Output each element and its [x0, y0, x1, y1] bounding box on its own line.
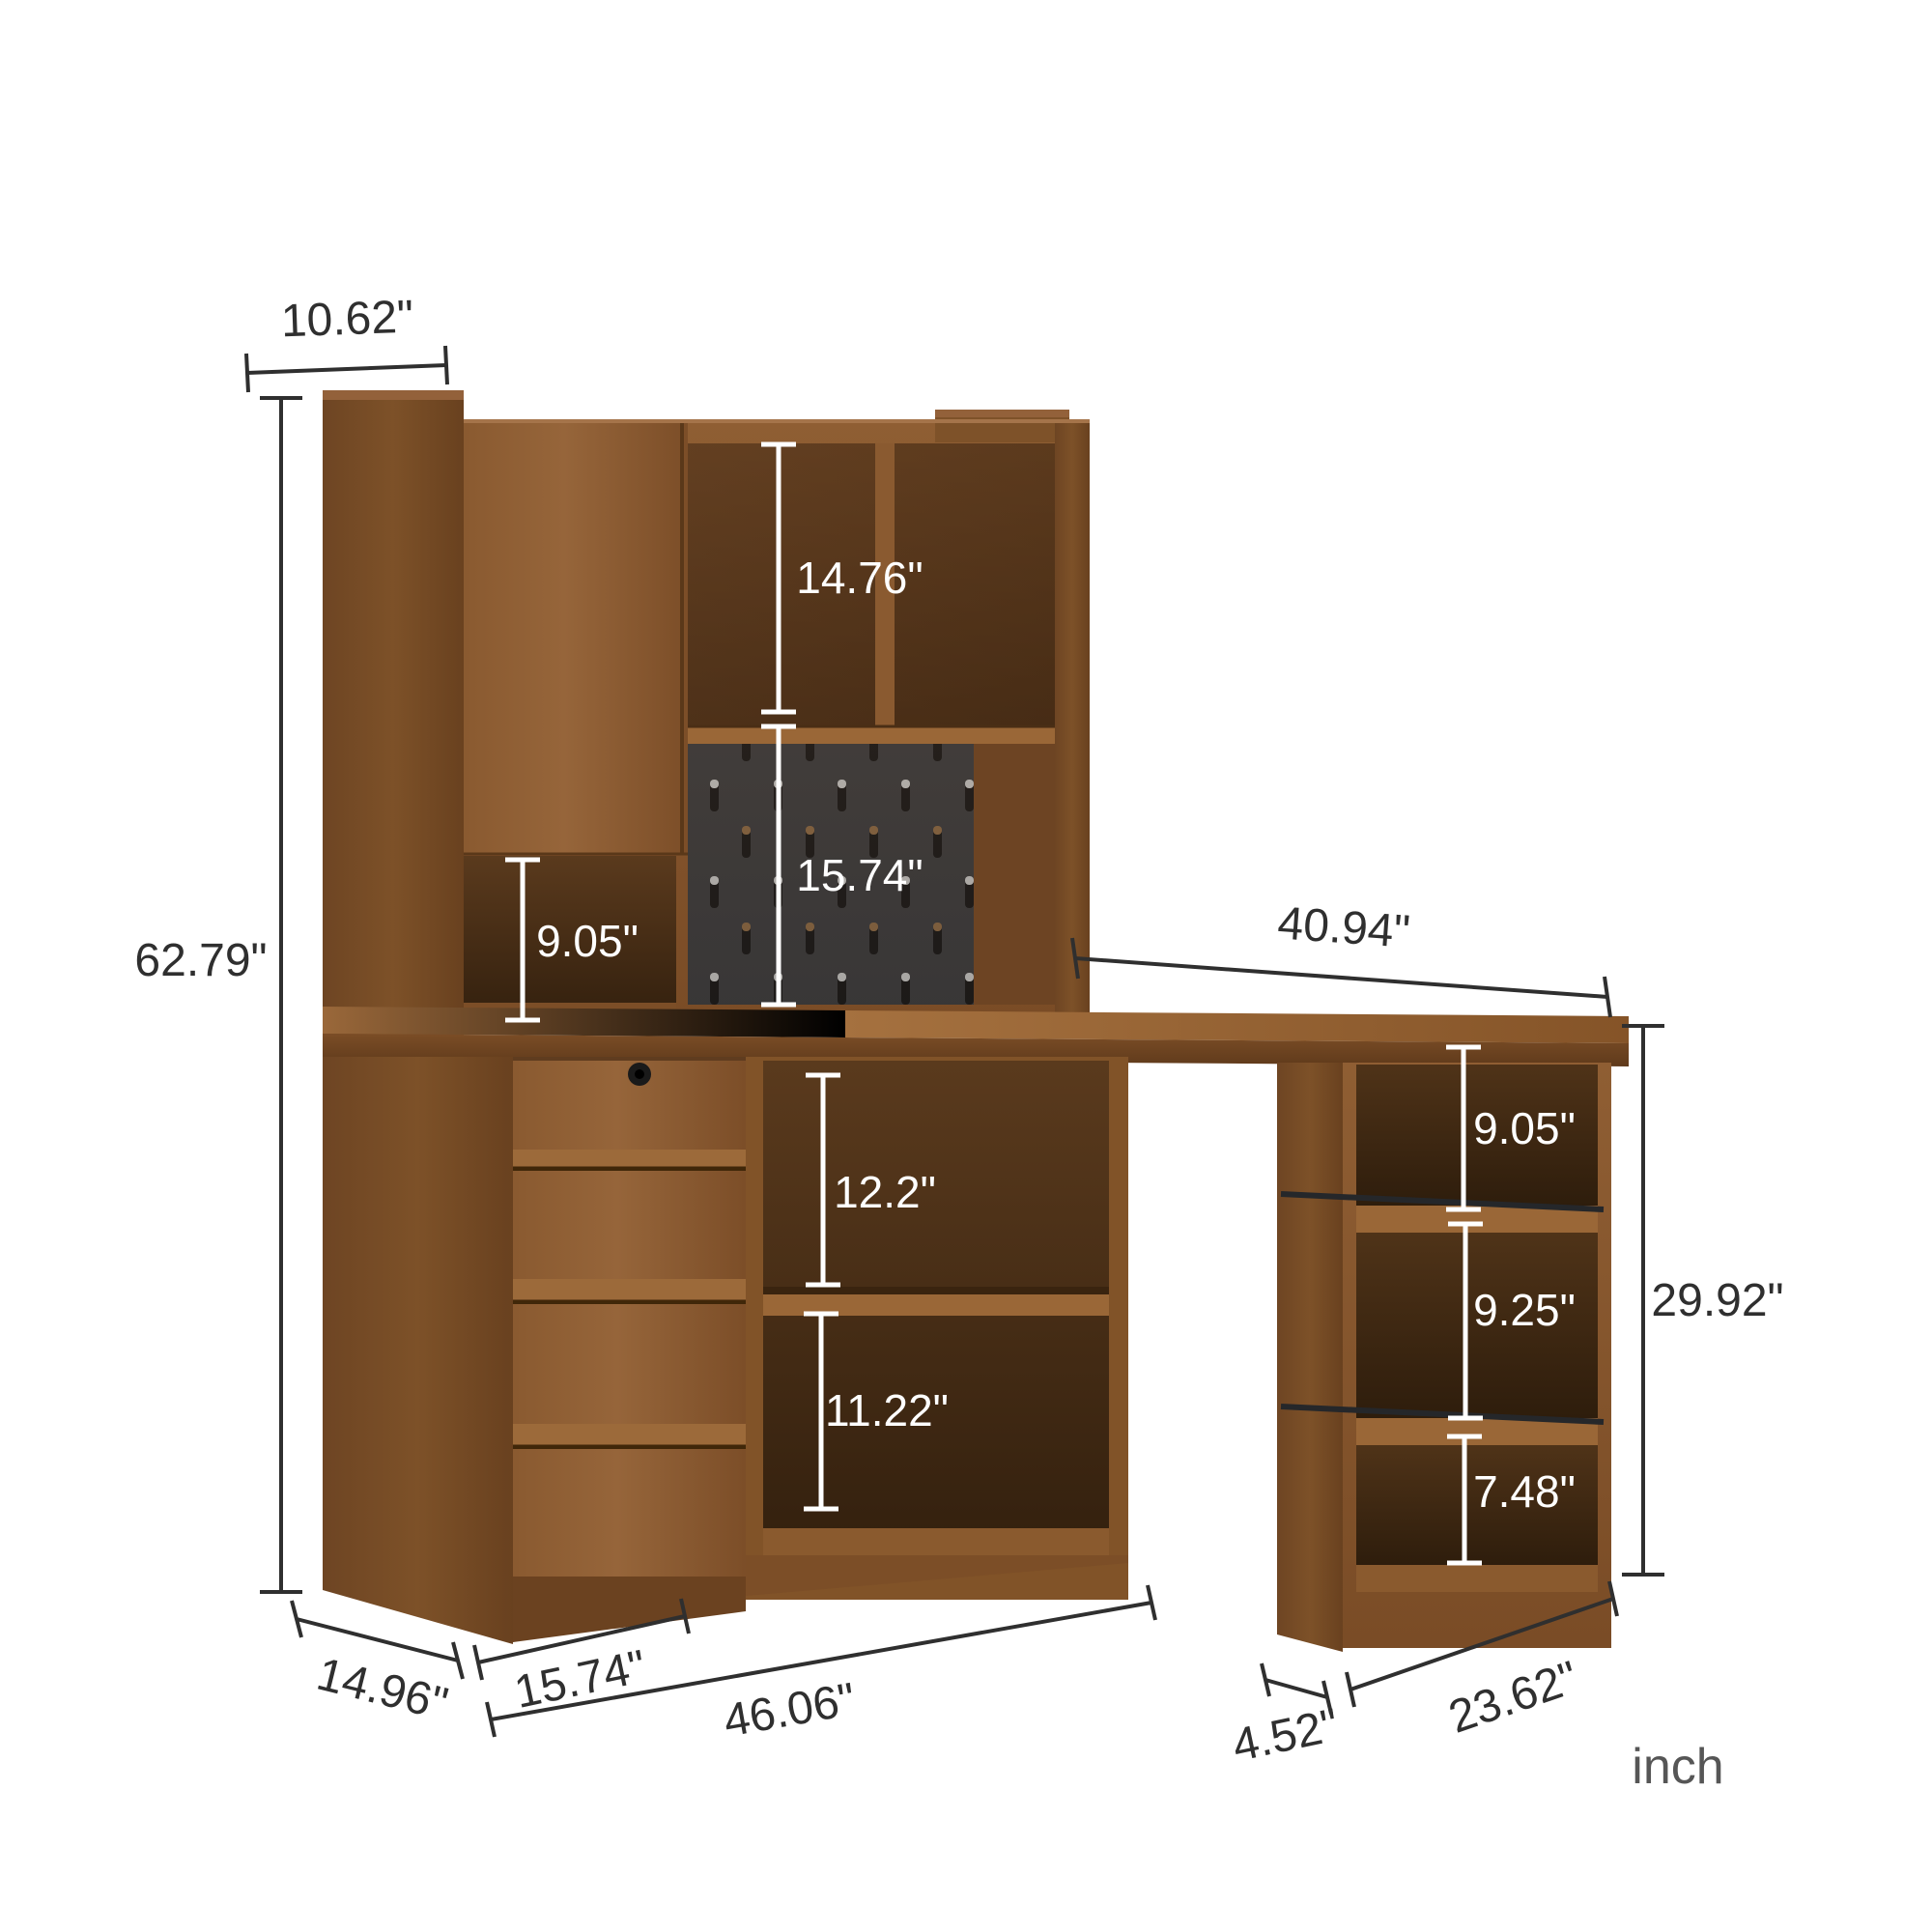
- underdesk-shelf-shadow: [763, 1287, 1109, 1294]
- dim-label-desktop-width: 40.94": [1276, 897, 1412, 957]
- hutch-right-top-cap-edge: [935, 410, 1069, 417]
- furniture-diagram-canvas: 10.62" 62.79" 40.94" 29.92" 14.96" 15.74…: [0, 0, 1932, 1932]
- hutch-left-tower: [323, 390, 464, 1057]
- dim-label-pegboard-height: 15.74": [796, 850, 923, 900]
- dim-label-cubby-height: 9.05": [536, 916, 639, 966]
- dim-label-left-unit-width: 46.06": [720, 1674, 859, 1747]
- dim-label-underdesk-lower-shelf: 11.22": [825, 1385, 949, 1435]
- hutch-right-side-panel: [1055, 419, 1090, 1026]
- left-cabinet: [323, 1057, 1128, 1644]
- right-pedestal-floor: [1356, 1565, 1598, 1592]
- dim-label-underdesk-upper-shelf: 12.2": [834, 1167, 936, 1217]
- hutch-shelf-board: [676, 726, 1055, 744]
- dim-total-height: [260, 398, 302, 1592]
- dim-label-right-unit-width: 23.62": [1442, 1652, 1584, 1744]
- dimension-diagram: 10.62" 62.79" 40.94" 29.92" 14.96" 15.74…: [0, 0, 1932, 1932]
- left-cabinet-base: [513, 1577, 746, 1642]
- hutch-backwall-strip: [974, 744, 1055, 1005]
- left-cabinet-side-panel: [323, 1057, 513, 1644]
- dim-top-width: [246, 346, 447, 392]
- dim-label-depth: 14.96": [312, 1649, 453, 1731]
- drawer-front-3: [513, 1304, 746, 1424]
- hutch-door-panel: [464, 419, 688, 854]
- dim-label-right-shelf-middle: 9.25": [1473, 1285, 1576, 1335]
- dim-label-top-width: 10.62": [280, 292, 414, 348]
- drawer-lock-keyhole: [635, 1069, 644, 1079]
- drawer-front-2: [513, 1171, 746, 1279]
- hutch-left-tower-top-cap: [323, 390, 464, 400]
- dim-label-hutch-shelf-height: 14.76": [796, 553, 923, 603]
- underdesk-shelf-floor: [763, 1528, 1109, 1555]
- dim-label-right-unit-height: 29.92": [1651, 1275, 1783, 1326]
- unit-label: inch: [1632, 1739, 1723, 1795]
- right-pedestal-side-panel: [1277, 1063, 1343, 1652]
- hutch-left-side-panel: [323, 390, 464, 1057]
- dim-label-right-shelf-bottom: 7.48": [1473, 1466, 1576, 1517]
- dim-label-knee-space: 4.52": [1228, 1699, 1343, 1772]
- drawer-front-4: [513, 1449, 746, 1577]
- dim-label-total-height: 62.79": [134, 935, 267, 986]
- dim-label-right-shelf-top: 9.05": [1473, 1103, 1576, 1153]
